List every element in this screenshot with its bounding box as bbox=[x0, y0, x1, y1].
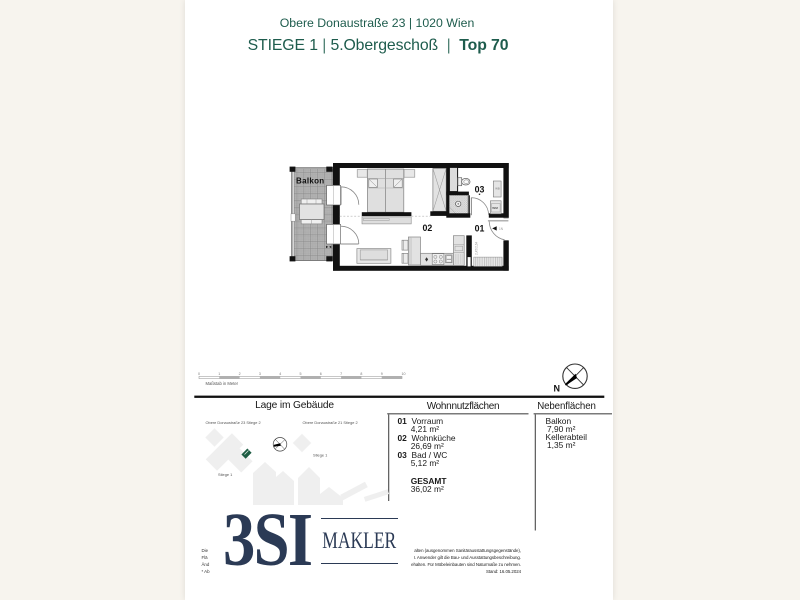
svg-text:3: 3 bbox=[259, 372, 261, 376]
svg-text:0: 0 bbox=[198, 372, 200, 376]
svg-text:4: 4 bbox=[279, 372, 281, 376]
svg-text:Balkon: Balkon bbox=[296, 177, 324, 186]
svg-text:01: 01 bbox=[475, 224, 485, 234]
svg-text:7: 7 bbox=[340, 372, 342, 376]
svg-text:WM: WM bbox=[492, 206, 498, 210]
svg-text:WB: WB bbox=[495, 187, 500, 191]
svg-text:02: 02 bbox=[423, 223, 433, 233]
svg-text:Maßstab in Meter: Maßstab in Meter bbox=[206, 381, 239, 386]
svg-text:Obere Donaustraße 23 Stiege 2: Obere Donaustraße 23 Stiege 2 bbox=[206, 420, 261, 425]
svg-text:Stiege 1: Stiege 1 bbox=[313, 453, 327, 458]
svg-text:6: 6 bbox=[320, 372, 322, 376]
svg-text:1: 1 bbox=[218, 372, 220, 376]
svg-text:9: 9 bbox=[381, 372, 383, 376]
svg-text:2,45/2,64: 2,45/2,64 bbox=[475, 241, 479, 255]
svg-text:03: 03 bbox=[475, 184, 485, 194]
svg-text:N: N bbox=[554, 384, 561, 394]
svg-text:Obere Donaustraße 21 Stiege 2: Obere Donaustraße 21 Stiege 2 bbox=[303, 420, 358, 425]
svg-text:10: 10 bbox=[402, 372, 406, 376]
svg-text:5: 5 bbox=[300, 372, 302, 376]
svg-text:Stiege 1: Stiege 1 bbox=[218, 472, 232, 477]
svg-text:8: 8 bbox=[360, 372, 362, 376]
svg-text:1N: 1N bbox=[499, 227, 504, 231]
svg-text:2: 2 bbox=[239, 372, 241, 376]
